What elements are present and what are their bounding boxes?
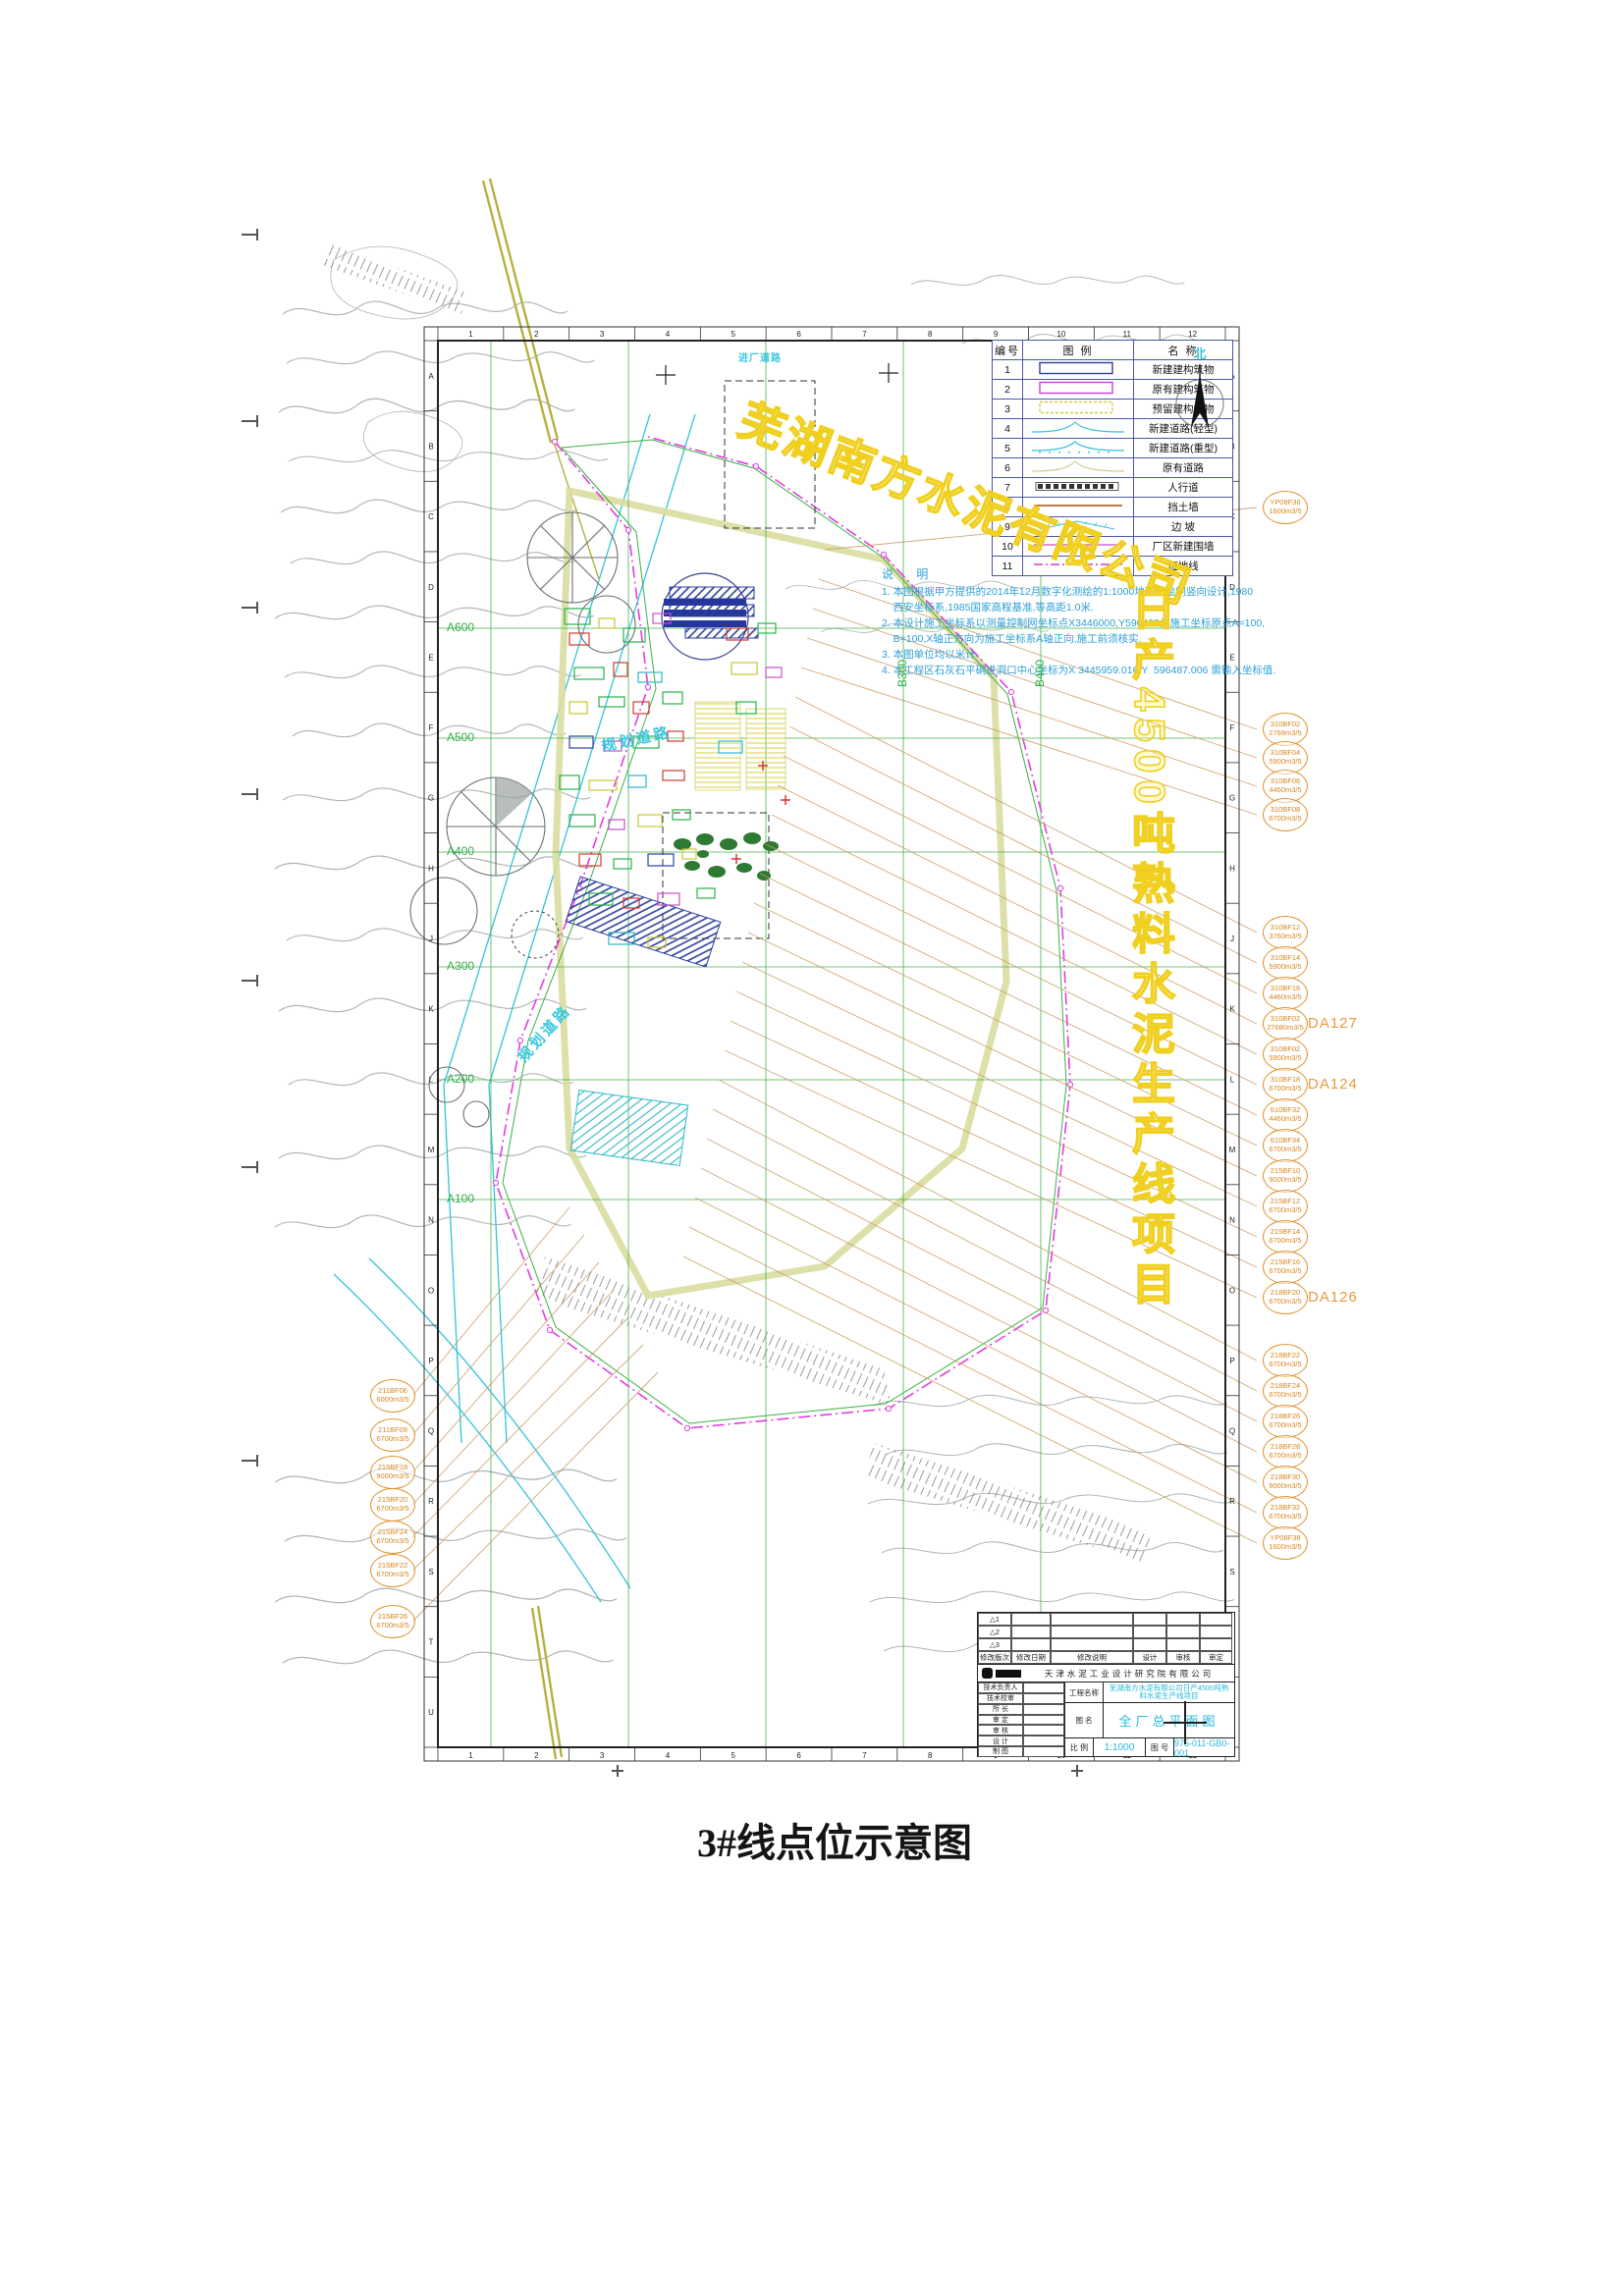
sidewalk-icon bbox=[1023, 478, 1134, 498]
svg-text:4: 4 bbox=[666, 1751, 671, 1760]
svg-text:O: O bbox=[428, 1286, 434, 1295]
survey-callout: 215BF246700m3/5 bbox=[370, 1521, 415, 1554]
svg-text:8: 8 bbox=[928, 1751, 933, 1760]
project-name-label: 工程名称 bbox=[1065, 1682, 1104, 1702]
svg-text:T: T bbox=[429, 1638, 434, 1647]
revision-mark: △3 bbox=[978, 1638, 1011, 1651]
legend-row: 9边 坡 bbox=[993, 517, 1233, 537]
svg-text:F: F bbox=[1230, 723, 1235, 732]
fold-mark bbox=[242, 420, 257, 422]
svg-text:7: 7 bbox=[862, 330, 867, 339]
svg-text:12: 12 bbox=[1188, 330, 1197, 339]
legend-no: 4 bbox=[993, 419, 1023, 439]
callout-text: 6700m3/5 bbox=[1264, 1146, 1307, 1154]
rect-magenta-icon bbox=[1023, 380, 1134, 400]
notes-title: 说 明 bbox=[882, 565, 1231, 582]
survey-callout: 215BF109000m3/5 bbox=[1263, 1159, 1308, 1193]
legend-no: 6 bbox=[993, 458, 1023, 478]
survey-callout: 218BF326700m3/5 bbox=[1263, 1496, 1308, 1529]
svg-text:O: O bbox=[1229, 1286, 1235, 1295]
revision-mark: △1 bbox=[978, 1613, 1011, 1626]
svg-text:A: A bbox=[428, 372, 434, 381]
survey-callout: 218BF246700m3/5 bbox=[1263, 1374, 1308, 1408]
north-label: 北 bbox=[1170, 344, 1229, 362]
svg-text:3: 3 bbox=[600, 330, 605, 339]
callout-text: 6700m3/5 bbox=[371, 1622, 414, 1630]
legend-row: 5新建道路(重型) bbox=[993, 439, 1233, 458]
svg-text:U: U bbox=[428, 1708, 434, 1717]
svg-text:H: H bbox=[1229, 864, 1235, 873]
revision-cell bbox=[1051, 1626, 1133, 1638]
callout-text: 6700m3/5 bbox=[1264, 1421, 1307, 1430]
callout-text: 2768m3/5 bbox=[1264, 729, 1307, 738]
entry-road-label: 进厂道路 bbox=[738, 349, 782, 364]
svg-text:6: 6 bbox=[796, 1751, 801, 1760]
svg-text:2: 2 bbox=[534, 330, 539, 339]
fold-mark bbox=[242, 1460, 257, 1462]
survey-callout: 215BF266700m3/5 bbox=[370, 1605, 415, 1638]
callout-text: 6700m3/5 bbox=[1264, 815, 1307, 824]
revision-header: 修改版次 bbox=[978, 1651, 1011, 1664]
signature-label: 审 核 bbox=[978, 1725, 1023, 1735]
fold-mark bbox=[617, 1765, 619, 1777]
svg-text:8: 8 bbox=[928, 330, 933, 339]
svg-text:R: R bbox=[1229, 1497, 1235, 1506]
svg-text:P: P bbox=[1229, 1357, 1234, 1365]
callout-text: 6700m3/5 bbox=[371, 1435, 414, 1444]
note-line: 2. 本设计施工坐标系以测量控制网坐标点X3446000,Y596400为施工坐… bbox=[882, 615, 1231, 631]
survey-callout: 215BF126700m3/5 bbox=[1263, 1190, 1308, 1223]
signature-value bbox=[1023, 1704, 1064, 1715]
svg-text:F: F bbox=[429, 723, 434, 732]
survey-callout: 215BF226700m3/5 bbox=[370, 1554, 415, 1587]
note-line: 4. 本工程区石灰石平硐进洞口中心坐标为X 3445959.016,Y 5964… bbox=[882, 663, 1231, 678]
survey-callout: 215BF166700m3/5 bbox=[1263, 1251, 1308, 1284]
document-page: 112233445566778899101011111212AABBCCDDEE… bbox=[0, 0, 1624, 2296]
notes-block: 说 明 1. 本图根据甲方提供的2014年12月数字化测绘的1:1000地形图绘… bbox=[882, 565, 1231, 678]
survey-callout: YP08F361600m3/5 bbox=[1263, 491, 1308, 524]
north-arrow: 北 bbox=[1170, 344, 1229, 434]
survey-callout: 211BF096700m3/5 bbox=[370, 1418, 415, 1452]
fold-mark bbox=[1076, 1765, 1078, 1777]
legend-name: 原有道路 bbox=[1134, 458, 1233, 478]
callout-text: 5900m3/5 bbox=[1264, 1054, 1307, 1063]
legend-row: 7人行道 bbox=[993, 478, 1233, 498]
legend-header: 编号 bbox=[993, 341, 1023, 360]
callout-text: 6700m3/5 bbox=[371, 1537, 414, 1546]
callout-text: 6700m3/5 bbox=[1264, 1298, 1307, 1307]
svg-text:L: L bbox=[429, 1075, 434, 1084]
signature-value bbox=[1023, 1735, 1064, 1746]
callout-text: 6700m3/5 bbox=[1264, 1206, 1307, 1215]
svg-text:6: 6 bbox=[796, 330, 801, 339]
legend-name: 厂区新建围墙 bbox=[1134, 537, 1233, 557]
callout-text: 6700m3/5 bbox=[1264, 1452, 1307, 1461]
revision-cell bbox=[1166, 1626, 1200, 1638]
svg-text:N: N bbox=[1229, 1216, 1235, 1225]
callout-text: 6700m3/5 bbox=[1264, 1267, 1307, 1276]
svg-text:2: 2 bbox=[534, 1751, 539, 1760]
signature-rows: 技术负责人技术校审所 长审 定审 核设 计制 图 bbox=[978, 1682, 1065, 1757]
svg-text:R: R bbox=[428, 1497, 434, 1506]
revision-mark: △2 bbox=[978, 1626, 1011, 1638]
svg-text:M: M bbox=[1229, 1146, 1236, 1154]
callout-text: 4460m3/5 bbox=[1264, 786, 1307, 795]
legend-no: 1 bbox=[993, 360, 1023, 380]
svg-text:S: S bbox=[428, 1568, 433, 1576]
svg-text:1: 1 bbox=[468, 330, 473, 339]
grid-label-A400: A400 bbox=[447, 844, 474, 858]
signature-label: 制 图 bbox=[978, 1746, 1023, 1757]
callout-text: 1600m3/5 bbox=[1264, 1543, 1307, 1552]
revision-cell bbox=[1011, 1638, 1051, 1651]
company-logo-icon bbox=[982, 1668, 993, 1679]
grid-label-A100: A100 bbox=[447, 1192, 474, 1205]
north-arrow-icon bbox=[1170, 362, 1229, 433]
revision-table: △1△2△3修改版次修改日期修改说明设计审核审定 bbox=[978, 1613, 1234, 1664]
callout-text: 6700m3/5 bbox=[1264, 1391, 1307, 1400]
signature-label: 设 计 bbox=[978, 1735, 1023, 1746]
signature-value bbox=[1023, 1693, 1064, 1704]
survey-callout: 218BF309000m3/5 bbox=[1263, 1466, 1308, 1499]
grid-label-B300: B300 bbox=[895, 660, 909, 687]
revision-cell bbox=[1011, 1613, 1051, 1626]
scale-value: 1:1000 bbox=[1094, 1738, 1146, 1757]
legend-name: 人行道 bbox=[1134, 478, 1233, 498]
callout-text: 1600m3/5 bbox=[1264, 507, 1307, 516]
revision-cell bbox=[1200, 1638, 1232, 1651]
svg-text:K: K bbox=[1229, 1005, 1235, 1014]
signature-value bbox=[1023, 1715, 1064, 1726]
callout-text: 4460m3/5 bbox=[1264, 993, 1307, 1002]
svg-text:Q: Q bbox=[1229, 1427, 1235, 1436]
scale-label: 比 例 bbox=[1065, 1738, 1094, 1757]
legend-no: 2 bbox=[993, 380, 1023, 400]
revision-header: 审核 bbox=[1166, 1651, 1200, 1664]
revision-cell bbox=[1133, 1626, 1166, 1638]
grid-label-A300: A300 bbox=[447, 959, 474, 973]
company-row: 天津水泥工业设计研究院有限公司 bbox=[978, 1664, 1234, 1682]
grid-label-B400: B400 bbox=[1033, 660, 1047, 687]
svg-text:3: 3 bbox=[600, 1751, 605, 1760]
legend-no: 8 bbox=[993, 498, 1023, 517]
legend-row: 6原有道路 bbox=[993, 458, 1233, 478]
svg-text:E: E bbox=[428, 653, 433, 662]
survey-callout: 218BF226700m3/5 bbox=[1263, 1344, 1308, 1377]
legend-no: 3 bbox=[993, 400, 1023, 419]
note-line: 西安坐标系,1985国家高程基准,等高距1.0米. bbox=[882, 600, 1231, 615]
svg-text:D: D bbox=[428, 583, 434, 592]
callout-text: 9000m3/5 bbox=[1264, 1176, 1307, 1185]
registration-cross bbox=[1164, 1701, 1207, 1744]
svg-text:L: L bbox=[1230, 1075, 1235, 1084]
fold-mark bbox=[242, 980, 257, 982]
survey-callout: 310BF164460m3/5 bbox=[1263, 977, 1308, 1010]
callout-text: 9000m3/5 bbox=[1264, 1482, 1307, 1491]
callout-text: 6700m3/5 bbox=[1264, 1513, 1307, 1522]
note-line: B=100,X轴正方向为施工坐标系A轴正向,施工前须核实. bbox=[882, 631, 1231, 647]
svg-text:5: 5 bbox=[731, 1751, 736, 1760]
svg-text:C: C bbox=[428, 512, 434, 521]
fold-mark bbox=[242, 607, 257, 609]
company-name: 天津水泥工业设计研究院有限公司 bbox=[1024, 1668, 1234, 1680]
signature-label: 所 长 bbox=[978, 1704, 1023, 1715]
fold-mark bbox=[242, 1166, 257, 1168]
wall-icon bbox=[1023, 498, 1134, 517]
survey-callout: 218BF286700m3/5 bbox=[1263, 1435, 1308, 1468]
revision-cell bbox=[1051, 1638, 1133, 1651]
legend-no: 5 bbox=[993, 439, 1023, 458]
survey-callout: 211BF066000m3/5 bbox=[370, 1379, 415, 1413]
company-logo-bar bbox=[996, 1670, 1021, 1678]
survey-callout: 310BF123760m3/5 bbox=[1263, 916, 1308, 949]
revision-cell bbox=[1011, 1626, 1051, 1638]
callout-text: 6700m3/5 bbox=[1264, 1085, 1307, 1094]
point-label-DA124: DA124 bbox=[1308, 1076, 1358, 1093]
legend-no: 7 bbox=[993, 478, 1023, 498]
rect-yellow-icon bbox=[1023, 400, 1134, 419]
road-exist-icon bbox=[1023, 458, 1134, 478]
survey-callout: 310BF0227680m3/5 bbox=[1263, 1007, 1308, 1041]
revision-cell bbox=[1200, 1626, 1232, 1638]
callout-text: 6000m3/5 bbox=[371, 1396, 414, 1405]
grid-label-A200: A200 bbox=[447, 1072, 474, 1086]
svg-text:B: B bbox=[428, 442, 433, 451]
svg-text:10: 10 bbox=[1056, 330, 1065, 339]
revision-cell bbox=[1051, 1613, 1133, 1626]
fold-mark bbox=[242, 234, 257, 236]
revision-cell bbox=[1133, 1613, 1166, 1626]
svg-text:7: 7 bbox=[862, 1751, 867, 1760]
svg-text:5: 5 bbox=[731, 330, 736, 339]
callout-text: 27680m3/5 bbox=[1264, 1024, 1307, 1033]
legend-header: 图 例 bbox=[1023, 341, 1134, 360]
callout-text: 3760m3/5 bbox=[1264, 933, 1307, 941]
signature-label: 技术负责人 bbox=[978, 1682, 1023, 1693]
revision-cell bbox=[1200, 1613, 1232, 1626]
svg-text:N: N bbox=[428, 1216, 434, 1225]
project-name: 芜湖南方水泥有限公司日产4500吨熟料水泥生产线项目 bbox=[1104, 1682, 1234, 1702]
signature-value bbox=[1023, 1725, 1064, 1735]
callout-text: 9000m3/5 bbox=[371, 1472, 414, 1481]
road-light-icon bbox=[1023, 419, 1134, 439]
revision-cell bbox=[1166, 1638, 1200, 1651]
survey-callout: YP08F381600m3/5 bbox=[1263, 1526, 1308, 1560]
legend-row: 10厂区新建围墙 bbox=[993, 537, 1233, 557]
svg-text:J: J bbox=[1230, 934, 1234, 943]
fence-icon bbox=[1023, 537, 1134, 557]
note-line: 1. 本图根据甲方提供的2014年12月数字化测绘的1:1000地形图绘制竖向设… bbox=[882, 584, 1231, 600]
svg-text:11: 11 bbox=[1123, 330, 1132, 339]
callout-text: 6700m3/5 bbox=[371, 1571, 414, 1579]
survey-callout: 218BF266700m3/5 bbox=[1263, 1405, 1308, 1438]
svg-text:9: 9 bbox=[994, 330, 999, 339]
rect-navy-icon bbox=[1023, 360, 1134, 380]
callout-text: 6700m3/5 bbox=[1264, 1361, 1307, 1369]
svg-text:G: G bbox=[428, 794, 434, 803]
svg-text:M: M bbox=[428, 1146, 435, 1154]
signature-value bbox=[1023, 1746, 1064, 1757]
legend-no: 10 bbox=[993, 537, 1023, 557]
grid-label-A600: A600 bbox=[447, 620, 474, 634]
grid-label-A500: A500 bbox=[447, 730, 474, 744]
svg-text:Q: Q bbox=[428, 1427, 434, 1436]
revision-header: 修改说明 bbox=[1051, 1651, 1133, 1664]
svg-text:S: S bbox=[1229, 1568, 1234, 1576]
survey-callout: 610BF346700m3/5 bbox=[1263, 1129, 1308, 1162]
callout-text: 4460m3/5 bbox=[1264, 1115, 1307, 1124]
callout-text: 5900m3/5 bbox=[1264, 963, 1307, 972]
survey-callout: 310BF086700m3/5 bbox=[1263, 798, 1308, 831]
plant-structures bbox=[410, 363, 898, 1165]
callout-text: 6700m3/5 bbox=[371, 1505, 414, 1514]
point-label-DA126: DA126 bbox=[1308, 1289, 1358, 1306]
revision-cell bbox=[1166, 1613, 1200, 1626]
entry-road bbox=[483, 179, 599, 1759]
revision-header: 设计 bbox=[1133, 1651, 1166, 1664]
svg-text:J: J bbox=[429, 934, 433, 943]
slope-icon bbox=[1023, 517, 1134, 537]
survey-callout: 310BF145900m3/5 bbox=[1263, 946, 1308, 980]
survey-callout: 215BF146700m3/5 bbox=[1263, 1220, 1308, 1254]
fold-mark bbox=[242, 793, 257, 795]
legend-name: 挡土墙 bbox=[1134, 498, 1233, 517]
legend-row: 8挡土墙 bbox=[993, 498, 1233, 517]
signature-value bbox=[1023, 1682, 1064, 1693]
survey-callout: 610BF324460m3/5 bbox=[1263, 1098, 1308, 1132]
figure-caption: 3#线点位示意图 bbox=[422, 1811, 1247, 1868]
svg-text:4: 4 bbox=[666, 330, 671, 339]
legend-name: 新建道路(重型) bbox=[1134, 439, 1233, 458]
legend-no: 9 bbox=[993, 517, 1023, 537]
svg-text:G: G bbox=[1229, 794, 1235, 803]
svg-text:H: H bbox=[428, 864, 434, 873]
callout-text: 6700m3/5 bbox=[1264, 1237, 1307, 1246]
survey-callout: 310BF025900m3/5 bbox=[1263, 1038, 1308, 1071]
svg-text:1: 1 bbox=[468, 1751, 473, 1760]
note-line: 3. 本图单位均以米计. bbox=[882, 647, 1231, 663]
svg-text:P: P bbox=[428, 1357, 433, 1365]
revision-header: 审定 bbox=[1200, 1651, 1232, 1664]
revision-header: 修改日期 bbox=[1011, 1651, 1051, 1664]
survey-callout: 310BF186700m3/5 bbox=[1263, 1068, 1308, 1101]
signature-label: 技术校审 bbox=[978, 1693, 1023, 1704]
drawing-name-label: 图 名 bbox=[1065, 1703, 1104, 1737]
survey-callout: 218BF206700m3/5 bbox=[1263, 1281, 1308, 1314]
survey-callout: 215BF189000m3/5 bbox=[370, 1456, 415, 1489]
callout-text: 5900m3/5 bbox=[1264, 758, 1307, 767]
signature-label: 审 定 bbox=[978, 1715, 1023, 1726]
svg-text:K: K bbox=[428, 1005, 434, 1014]
revision-cell bbox=[1133, 1638, 1166, 1651]
point-label-DA127: DA127 bbox=[1308, 1015, 1358, 1032]
road-heavy-icon bbox=[1023, 439, 1134, 458]
survey-callout: 215BF206700m3/5 bbox=[370, 1488, 415, 1522]
legend-name: 边 坡 bbox=[1134, 517, 1233, 537]
